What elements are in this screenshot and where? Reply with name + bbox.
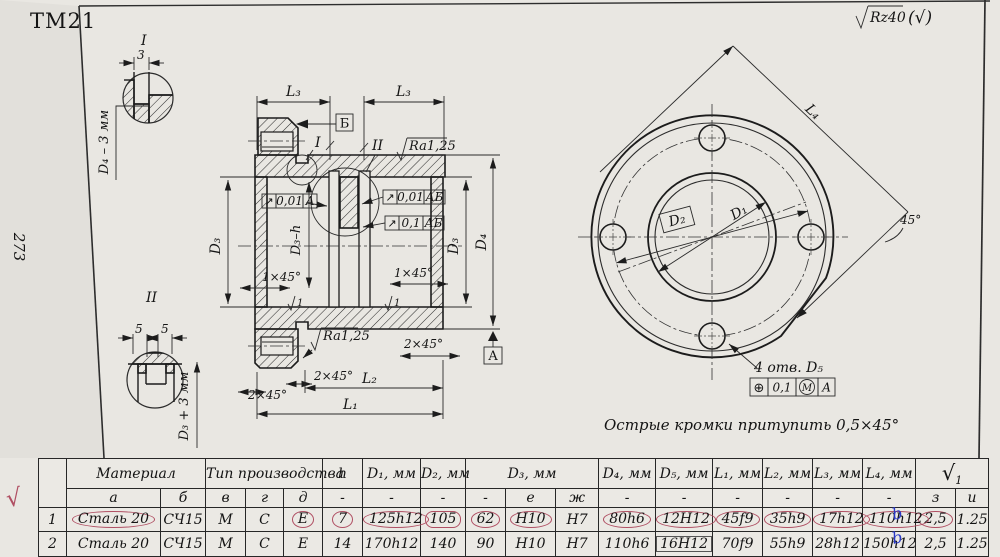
cell-l1: 45f9 [716, 511, 760, 528]
position-datum: А [821, 381, 831, 395]
page-number: 273 [10, 232, 28, 262]
dim-l3-right: L₃ [395, 84, 411, 100]
cell-d3: 62 [471, 511, 501, 528]
subheader: - [713, 489, 763, 508]
subheader-row: а б в г д - - - - е ж - - - - - - з и [39, 489, 989, 508]
page-border-top [79, 1, 990, 6]
subheader: д [284, 489, 323, 508]
detail-view-ii: II 5 5 D₃ + 3 мм [118, 290, 197, 448]
bolt-hole-left [595, 219, 631, 255]
general-roughness-alt: (√) [908, 8, 932, 28]
dim-d4: D₄ [474, 233, 490, 251]
frame2-datum: АБ [425, 190, 444, 204]
header-l3: L₃, мм [813, 459, 863, 489]
cell-d4: 110h6 [599, 532, 656, 557]
ra-top-label: Ra1,25 [408, 139, 456, 154]
front-view: L₄ 45° D₁ D₂ 4 отв. D₅ ⊕ 0,1 М А Острые … [578, 46, 921, 434]
section-top-flange [255, 155, 445, 177]
position-modifier: М [801, 383, 813, 394]
subheader: - [363, 489, 421, 508]
runout-frame-2: ↗ 0,01 АБ [362, 190, 445, 204]
table-row: 1 Сталь 20 СЧ15 М С Е 7 125h12 105 62 Н1… [39, 508, 989, 532]
position-icon: ⊕ [754, 381, 765, 396]
cell-l1: 70f9 [713, 532, 763, 557]
holes-note: 4 отв. D₅ [753, 360, 823, 376]
detail-ref-ii: II [371, 138, 384, 154]
cell-prod-d: Е [292, 511, 314, 528]
subheader: в [206, 489, 246, 508]
subheader: - [656, 489, 713, 508]
section-slot-left [329, 171, 339, 307]
subheader: - [813, 489, 863, 508]
subheader: - [323, 489, 363, 508]
cell-material-b: СЧ15 [161, 532, 206, 557]
bolt-hole-top [694, 120, 730, 156]
section-hub-web [340, 177, 358, 228]
general-roughness-value: Rz40 [869, 10, 906, 26]
frame3-datum: АБ [424, 216, 443, 230]
chamfer-2x45-mid: 2×45° [313, 369, 353, 383]
cell-d3zh: Н7 [556, 508, 599, 532]
subheader: а [67, 489, 161, 508]
datum-b-flag: Б [296, 114, 353, 132]
cell-d1: 170h12 [363, 532, 421, 557]
cell-rough-i: 1.25 [956, 532, 989, 557]
cell-d1: 125h12 [363, 511, 429, 528]
cell-d2: 105 [425, 511, 462, 528]
header-d3: D₃, мм [466, 459, 599, 489]
cell-prod-g: С [246, 508, 284, 532]
cell-l3: 28h12 [813, 532, 863, 557]
r1-left: 1 [297, 298, 303, 309]
scanned-drawing-page: ТМ21 273 Rz40 (√) I 3 D₄ – 3 мм II [0, 0, 1000, 557]
position-tolerance-frame: ⊕ 0,1 М А [750, 378, 835, 396]
subheader: ж [556, 489, 599, 508]
detail-ref-i: I [314, 135, 321, 151]
roughness-check-icon: √ [942, 461, 955, 485]
subheader: - [421, 489, 466, 508]
header-d5: D₅, мм [656, 459, 713, 489]
detail-view-i: I 3 D₄ – 3 мм [97, 33, 177, 180]
subheader: з [916, 489, 956, 508]
edge-note: Острые кромки притупить 0,5×45° [604, 416, 899, 434]
subheader: - [466, 489, 506, 508]
dim-l1: L₁ [342, 397, 358, 413]
dim-l3-left: L₃ [285, 84, 301, 100]
dim-d3-right: D₃ [446, 237, 462, 255]
datum-a-label: А [488, 349, 498, 364]
dim-l2: L₂ [361, 371, 377, 387]
cell-d2: 140 [421, 532, 466, 557]
header-l4: L₄, мм [863, 459, 916, 489]
frame1-value: 0,01 [276, 194, 303, 208]
frame2-value: 0,01 [397, 190, 424, 204]
bolt-hole-right [793, 219, 829, 255]
detail-ii-dim-left: 5 [135, 322, 143, 336]
datum-a-flag: А [484, 331, 502, 364]
cell-d5: 12Н12 [656, 511, 716, 528]
dim-d1: D₁ [727, 201, 750, 224]
header-d2: D₂, мм [421, 459, 466, 489]
detail-i-dim: 3 [137, 48, 145, 62]
header-d4: D₄, мм [599, 459, 656, 489]
cell-material-b: СЧ15 [161, 508, 206, 532]
position-value: 0,1 [772, 381, 791, 395]
cell-prod-v: М [206, 532, 246, 557]
cell-prod-g: С [246, 532, 284, 557]
datum-b-label: Б [340, 117, 350, 132]
row-number: 2 [39, 532, 67, 557]
sheet-title: ТМ21 [30, 9, 96, 33]
cell-h: 14 [323, 532, 363, 557]
section-slot-right [359, 171, 370, 307]
cell-prod-v: М [206, 508, 246, 532]
dim-d2-box: D₂ [659, 206, 695, 233]
cell-l2: 35h9 [764, 511, 812, 528]
detail-ii-label: II [145, 290, 158, 306]
r1-right: 1 [394, 298, 400, 309]
cell-prod-d: Е [284, 532, 323, 557]
pen-check-mark: √ [4, 483, 23, 513]
runout-frame-1: ↗ 0,01 А [262, 194, 327, 208]
header-d1: D₁, мм [363, 459, 421, 489]
cell-l2: 55h9 [763, 532, 813, 557]
cell-d3e: Н10 [510, 511, 552, 528]
frame3-value: 0,1 [401, 216, 420, 230]
subheader: - [599, 489, 656, 508]
section-bottom-flange [255, 307, 443, 329]
dim-d3-left: D₃ [208, 237, 224, 255]
cell-h: 7 [332, 511, 353, 528]
technical-drawing: ТМ21 273 Rz40 (√) I 3 D₄ – 3 мм II [0, 0, 1000, 460]
frame1-datum: А [304, 194, 314, 208]
roughness-ra-bottom: Ra1,25 [303, 328, 370, 358]
cell-l4: 150h12 [863, 536, 917, 552]
detail-i-note: D₄ – 3 мм [97, 110, 112, 175]
row-number: 1 [39, 508, 67, 532]
num-column-header [39, 459, 67, 508]
cell-d4: 80h6 [603, 511, 651, 528]
section-view: L₃ L₃ Б I II Ra1,25 Ra1,25 1 [208, 84, 502, 419]
header-l2: L₂, мм [763, 459, 813, 489]
chamfer-1x45-right: 1×45° [394, 266, 433, 280]
cell-rough-i: 1.25 [956, 508, 989, 532]
runout-icon: ↗ [385, 191, 394, 204]
runout-icon: ↗ [387, 217, 396, 230]
bolt-hole-bottom [694, 318, 730, 354]
detail-ii-note: D₃ + 3 мм [177, 372, 192, 442]
general-roughness-note: Rz40 (√) [856, 6, 932, 28]
cell-material-a: Сталь 20 [67, 532, 161, 557]
table-row: 2 Сталь 20 СЧ15 М С Е 14 170h12 140 90 Н… [39, 532, 989, 557]
header-production: Тип производства [206, 459, 323, 489]
cell-d5: 16Н12 [656, 536, 712, 553]
chamfer-2x45-right: 2×45° [403, 337, 443, 351]
parameter-table: Материал Тип производства h D₁, мм D₂, м… [38, 458, 989, 557]
cell-rough-z: 2,5 [916, 532, 956, 557]
cell-d3e: Н10 [506, 532, 556, 557]
cell-d3zh: Н7 [556, 532, 599, 557]
angle-45-label: 45° [899, 213, 921, 227]
header-material: Материал [67, 459, 206, 489]
cell-d3: 90 [466, 532, 506, 557]
detail-i-label: I [140, 33, 147, 49]
dim-l4: L₄ [801, 100, 824, 123]
chamfer-2x45-left: 2×45° [247, 388, 287, 402]
subheader: - [763, 489, 813, 508]
subheader: е [506, 489, 556, 508]
subheader: б [161, 489, 206, 508]
chamfer-1x45-left: 1×45° [262, 270, 301, 284]
header-roughness: √1 [916, 459, 989, 489]
scan-margin-left [0, 0, 104, 458]
runout-icon: ↗ [264, 195, 273, 208]
subheader: г [246, 489, 284, 508]
subheader: и [956, 489, 989, 508]
cell-l3: 17h12 [813, 511, 870, 528]
ra-bottom-label: Ra1,25 [322, 329, 370, 344]
header-l1: L₁, мм [713, 459, 763, 489]
dim-d3-h: D₃–h [289, 225, 304, 257]
cell-material-a: Сталь 20 [72, 511, 155, 528]
detail-ii-dim-right: 5 [161, 322, 169, 336]
page-border-right [979, 0, 985, 458]
